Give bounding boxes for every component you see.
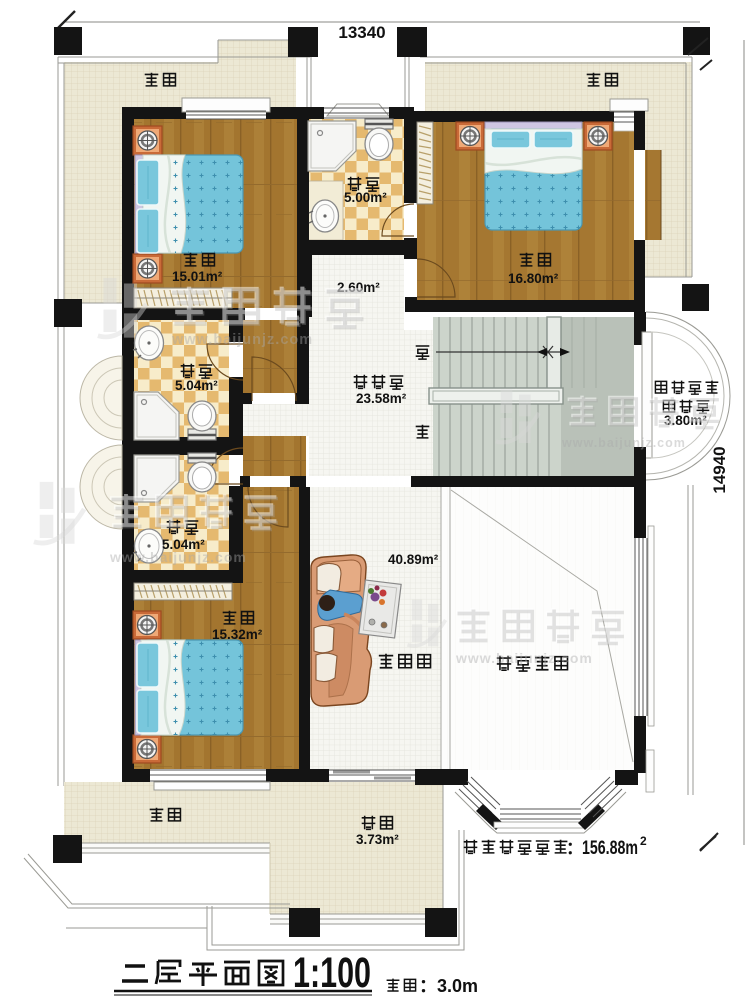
svg-text:156.88m: 156.88m <box>582 837 638 859</box>
svg-text:14940: 14940 <box>710 446 729 493</box>
svg-text:23.58m²: 23.58m² <box>356 391 407 406</box>
svg-text:www.baijunjz.com: www.baijunjz.com <box>109 549 247 565</box>
svg-text:5.04m²: 5.04m² <box>175 378 218 393</box>
svg-text:2: 2 <box>640 834 647 848</box>
svg-text:www.baijunjz.com: www.baijunjz.com <box>455 650 593 666</box>
svg-text:5.00m²: 5.00m² <box>344 190 387 205</box>
svg-text:www.baijunjz.com: www.baijunjz.com <box>171 332 313 348</box>
svg-text:16.80m²: 16.80m² <box>508 271 559 286</box>
svg-text:：: ： <box>566 839 583 858</box>
svg-text:40.89m²: 40.89m² <box>388 552 439 567</box>
svg-text:15.01m²: 15.01m² <box>172 269 223 284</box>
svg-text:：3.0m: ：3.0m <box>419 976 478 996</box>
svg-text:13340: 13340 <box>338 23 385 42</box>
svg-text:3.73m²: 3.73m² <box>356 832 399 847</box>
svg-text:15.32m²: 15.32m² <box>212 627 263 642</box>
svg-text:www.baijunjz.com: www.baijunjz.com <box>561 436 686 450</box>
